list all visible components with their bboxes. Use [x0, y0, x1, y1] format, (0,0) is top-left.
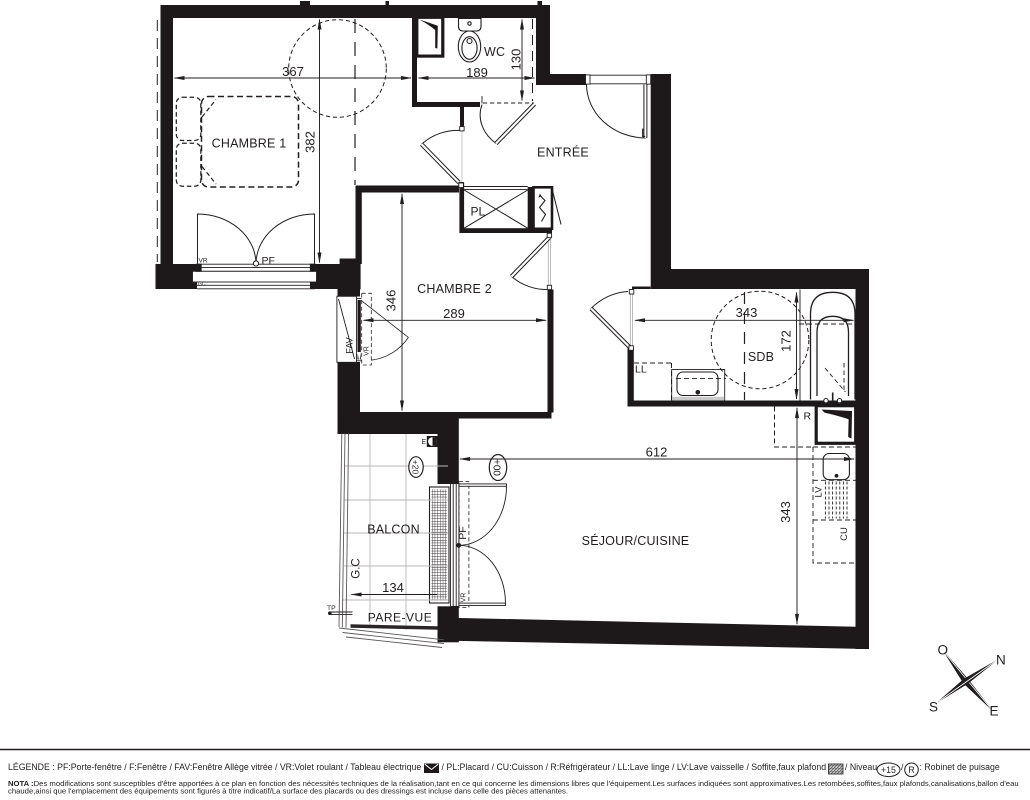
- svg-text:G.C: G.C: [351, 558, 363, 578]
- svg-text:: Robinet de puisage: : Robinet de puisage: [920, 762, 1000, 772]
- svg-text:chaude,ainsi que l'emplacement: chaude,ainsi que l'emplacement des équip…: [8, 787, 568, 796]
- svg-text:612: 612: [646, 445, 668, 460]
- svg-text:/ Niveau: / Niveau: [845, 762, 877, 772]
- svg-text:+00: +00: [491, 459, 502, 476]
- svg-text:R: R: [908, 765, 914, 775]
- svg-text:R: R: [804, 411, 812, 423]
- svg-text:343: 343: [778, 501, 793, 523]
- svg-text:GC: GC: [198, 282, 206, 288]
- svg-text:E: E: [990, 704, 999, 719]
- svg-text:VR: VR: [199, 258, 208, 265]
- svg-text:PF: PF: [262, 255, 275, 267]
- svg-text:346: 346: [384, 290, 399, 312]
- svg-text:O: O: [938, 643, 949, 658]
- svg-text:TP: TP: [327, 605, 336, 612]
- svg-text:ENTRÉE: ENTRÉE: [537, 145, 589, 160]
- svg-text:+15: +15: [881, 765, 896, 775]
- svg-text:367: 367: [282, 64, 304, 79]
- svg-text:PF: PF: [457, 526, 469, 539]
- svg-text:N: N: [996, 653, 1006, 668]
- svg-text:SDB: SDB: [748, 350, 774, 364]
- svg-text:LL: LL: [635, 364, 647, 376]
- svg-text:CHAMBRE 1: CHAMBRE 1: [212, 137, 287, 151]
- svg-text:PARE-VUE: PARE-VUE: [368, 611, 432, 625]
- svg-text:BALCON: BALCON: [367, 523, 420, 537]
- svg-text:289: 289: [443, 306, 465, 321]
- svg-text:VR: VR: [461, 593, 468, 603]
- svg-text:343: 343: [736, 305, 758, 320]
- svg-text:VR: VR: [364, 346, 371, 356]
- svg-text:130: 130: [509, 49, 524, 71]
- svg-text:FAV: FAV: [345, 337, 355, 353]
- svg-text:/ PL:Placard / CU:Cuisson / R:: / PL:Placard / CU:Cuisson / R:Réfrigérat…: [442, 762, 827, 772]
- svg-text:E: E: [422, 439, 427, 446]
- svg-text:189: 189: [466, 65, 488, 80]
- svg-text:WC: WC: [484, 45, 505, 59]
- svg-text:LÉGENDE : PF:Porte-fenêtre /: LÉGENDE : PF:Porte-fenêtre / F:Fenêtre /…: [8, 762, 421, 772]
- svg-text:S: S: [929, 700, 938, 715]
- svg-text:134: 134: [382, 580, 404, 595]
- svg-text:/: /: [901, 762, 904, 772]
- svg-text:CHAMBRE 2: CHAMBRE 2: [417, 282, 492, 296]
- svg-text:172: 172: [779, 330, 794, 352]
- svg-text:382: 382: [303, 131, 318, 153]
- svg-text:+20: +20: [411, 460, 421, 475]
- svg-text:LV: LV: [814, 486, 825, 498]
- svg-text:CU: CU: [839, 527, 850, 541]
- svg-text:PL: PL: [471, 205, 486, 219]
- svg-text:SÉJOUR/CUISINE: SÉJOUR/CUISINE: [582, 533, 690, 548]
